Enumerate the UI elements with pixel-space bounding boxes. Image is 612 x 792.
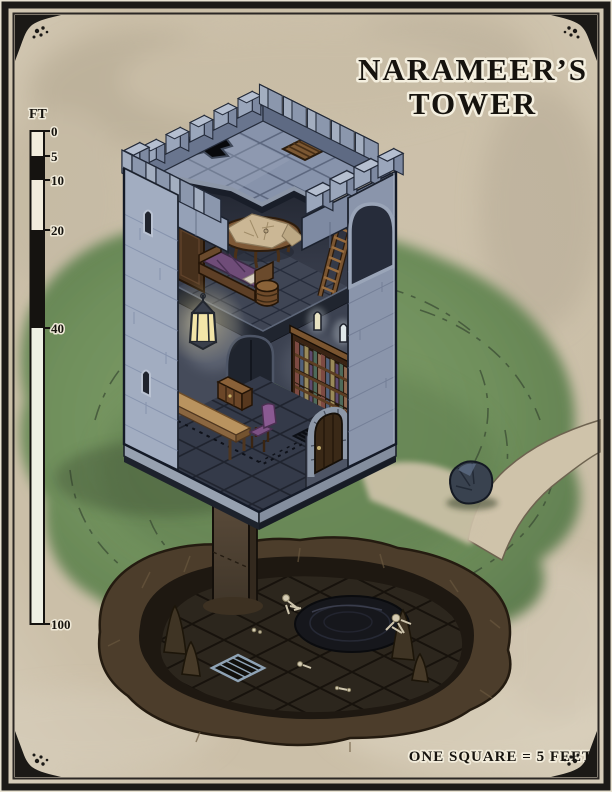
pillar-base-dirt	[203, 597, 263, 615]
title-line-1: NARAMEER’S	[358, 52, 588, 87]
scale-tick-label: 10	[51, 173, 64, 188]
earthen-cavern	[99, 537, 510, 752]
scale-tick-label: 100	[51, 617, 71, 632]
scale-tick-label: 40	[51, 321, 64, 336]
right-exterior-wall	[348, 173, 396, 467]
scale-tick-label: 5	[51, 149, 58, 164]
scale-legend: ONE SQUARE = 5 FEET	[409, 749, 593, 765]
scale-tick-label: 0	[51, 124, 58, 139]
left-exterior-wall	[124, 168, 178, 470]
door-knob	[317, 446, 321, 450]
tower-map-illustration: FT 0 5 10 20 40 100 NARAMEER’S TOWER ONE…	[0, 0, 612, 792]
tower	[122, 84, 403, 530]
barrel	[256, 281, 278, 307]
scale-tick-label: 20	[51, 223, 64, 238]
map-page: FT 0 5 10 20 40 100 NARAMEER’S TOWER ONE…	[0, 0, 612, 792]
scale-unit-label: FT	[29, 107, 48, 122]
scale-bar-segments	[31, 131, 45, 624]
title-line-2: TOWER	[409, 86, 537, 121]
